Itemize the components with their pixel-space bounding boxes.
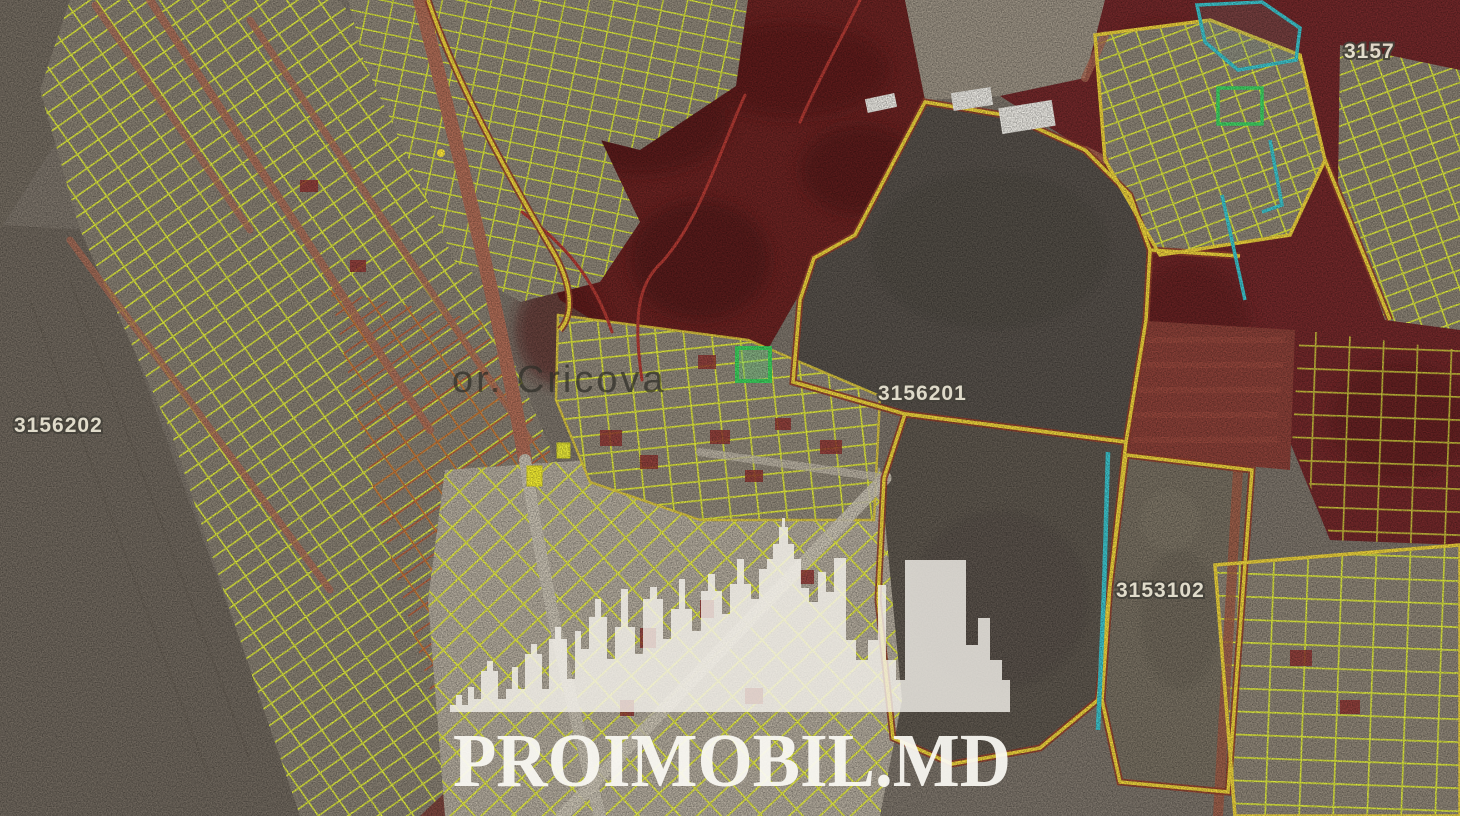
satellite-map-canvas[interactable]: or. Cricova 3156202 3156201 3153102 3157… [0, 0, 1460, 816]
cadastral-label-3153102: 3153102 [1116, 579, 1205, 602]
map-screenshot: or. Cricova 3156202 3156201 3153102 3157… [0, 0, 1460, 816]
cadastral-label-3156201: 3156201 [878, 382, 967, 405]
cadastral-label-3156202: 3156202 [14, 414, 103, 437]
town-label: or. Cricova [452, 359, 667, 401]
cadastral-label-3157: 3157 [1344, 40, 1395, 63]
watermark-text: PROIMOBIL.MD [453, 719, 1011, 803]
